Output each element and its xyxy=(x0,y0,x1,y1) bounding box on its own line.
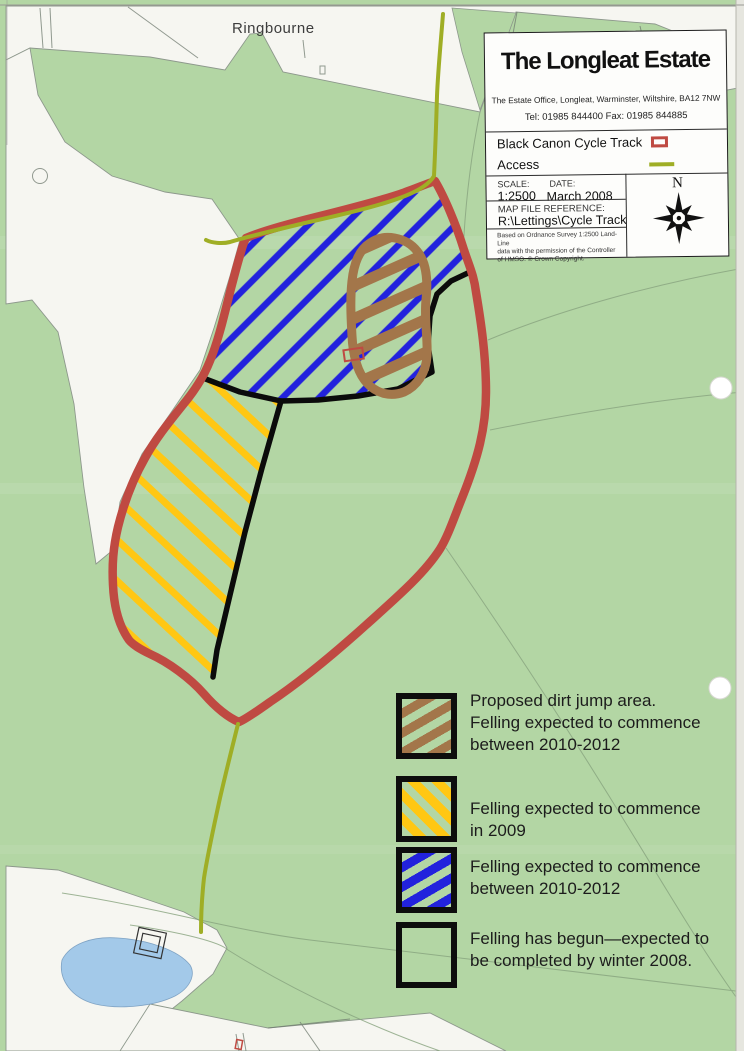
estate-phone: Tel: 01985 844400 Fax: 01985 844885 xyxy=(486,110,727,124)
legend-swatch-dirt-jump xyxy=(396,693,457,759)
compass-rose-icon xyxy=(653,192,706,245)
legend-text-felling-begun: Felling has begun—expected to be complet… xyxy=(470,928,709,972)
scanned-estate-map-page: Ringbourne The Longleat Estate The Estat… xyxy=(0,0,744,1051)
legend-line: Felling has begun—expected to xyxy=(470,928,709,950)
date-value: March 2008 xyxy=(547,189,613,204)
copyright-line: of HMSO. © Crown Copyright. xyxy=(497,255,625,265)
date-label: DATE: xyxy=(549,178,575,188)
legend-line: Felling expected to commence xyxy=(470,856,701,878)
legend-line: Felling expected to commence xyxy=(470,798,701,820)
hole-punch-bottom xyxy=(709,677,731,699)
legend-text-felling-2009: Felling expected to commence in 2009 xyxy=(470,798,701,842)
legend-line: between 2010-2012 xyxy=(470,734,701,756)
file-reference-value: R:\Lettings\Cycle Track xyxy=(498,213,627,229)
legend-line: Felling expected to commence xyxy=(470,712,701,734)
track-legend-label: Black Canon Cycle Track xyxy=(497,135,642,152)
legend-line: Proposed dirt jump area. xyxy=(470,690,701,712)
scale-label: SCALE: xyxy=(497,179,529,189)
copyright-note: Based on Ordnance Survey 1:2500 Land-Lin… xyxy=(497,231,625,265)
track-legend-symbol xyxy=(651,136,668,147)
place-label-ringbourne: Ringbourne xyxy=(232,20,315,37)
dirt-jump-area xyxy=(351,237,427,394)
map-title-box: The Longleat Estate The Estate Office, L… xyxy=(484,30,730,260)
legend-line: in 2009 xyxy=(470,820,701,842)
page-edge-strip xyxy=(736,0,744,1051)
access-legend-label: Access xyxy=(497,157,539,173)
divider xyxy=(486,129,727,133)
legend-line: between 2010-2012 xyxy=(470,878,701,900)
copyright-line: Based on Ordnance Survey 1:2500 Land-Lin… xyxy=(497,231,625,249)
legend-text-felling-2010-2012: Felling expected to commence between 201… xyxy=(470,856,701,900)
legend-swatch-felling-2009 xyxy=(396,776,457,842)
estate-address: The Estate Office, Longleat, Warminster,… xyxy=(485,93,726,106)
access-legend-symbol xyxy=(649,162,674,166)
hole-punch-top xyxy=(710,377,732,399)
legend-line: be completed by winter 2008. xyxy=(470,950,709,972)
legend-swatch-felling-begun xyxy=(396,922,457,988)
legend-swatch-felling-2010-2012 xyxy=(396,847,457,913)
estate-title: The Longleat Estate xyxy=(485,46,726,77)
legend-text-dirt-jump: Proposed dirt jump area. Felling expecte… xyxy=(470,690,701,756)
compass-north-label: N xyxy=(625,175,729,193)
